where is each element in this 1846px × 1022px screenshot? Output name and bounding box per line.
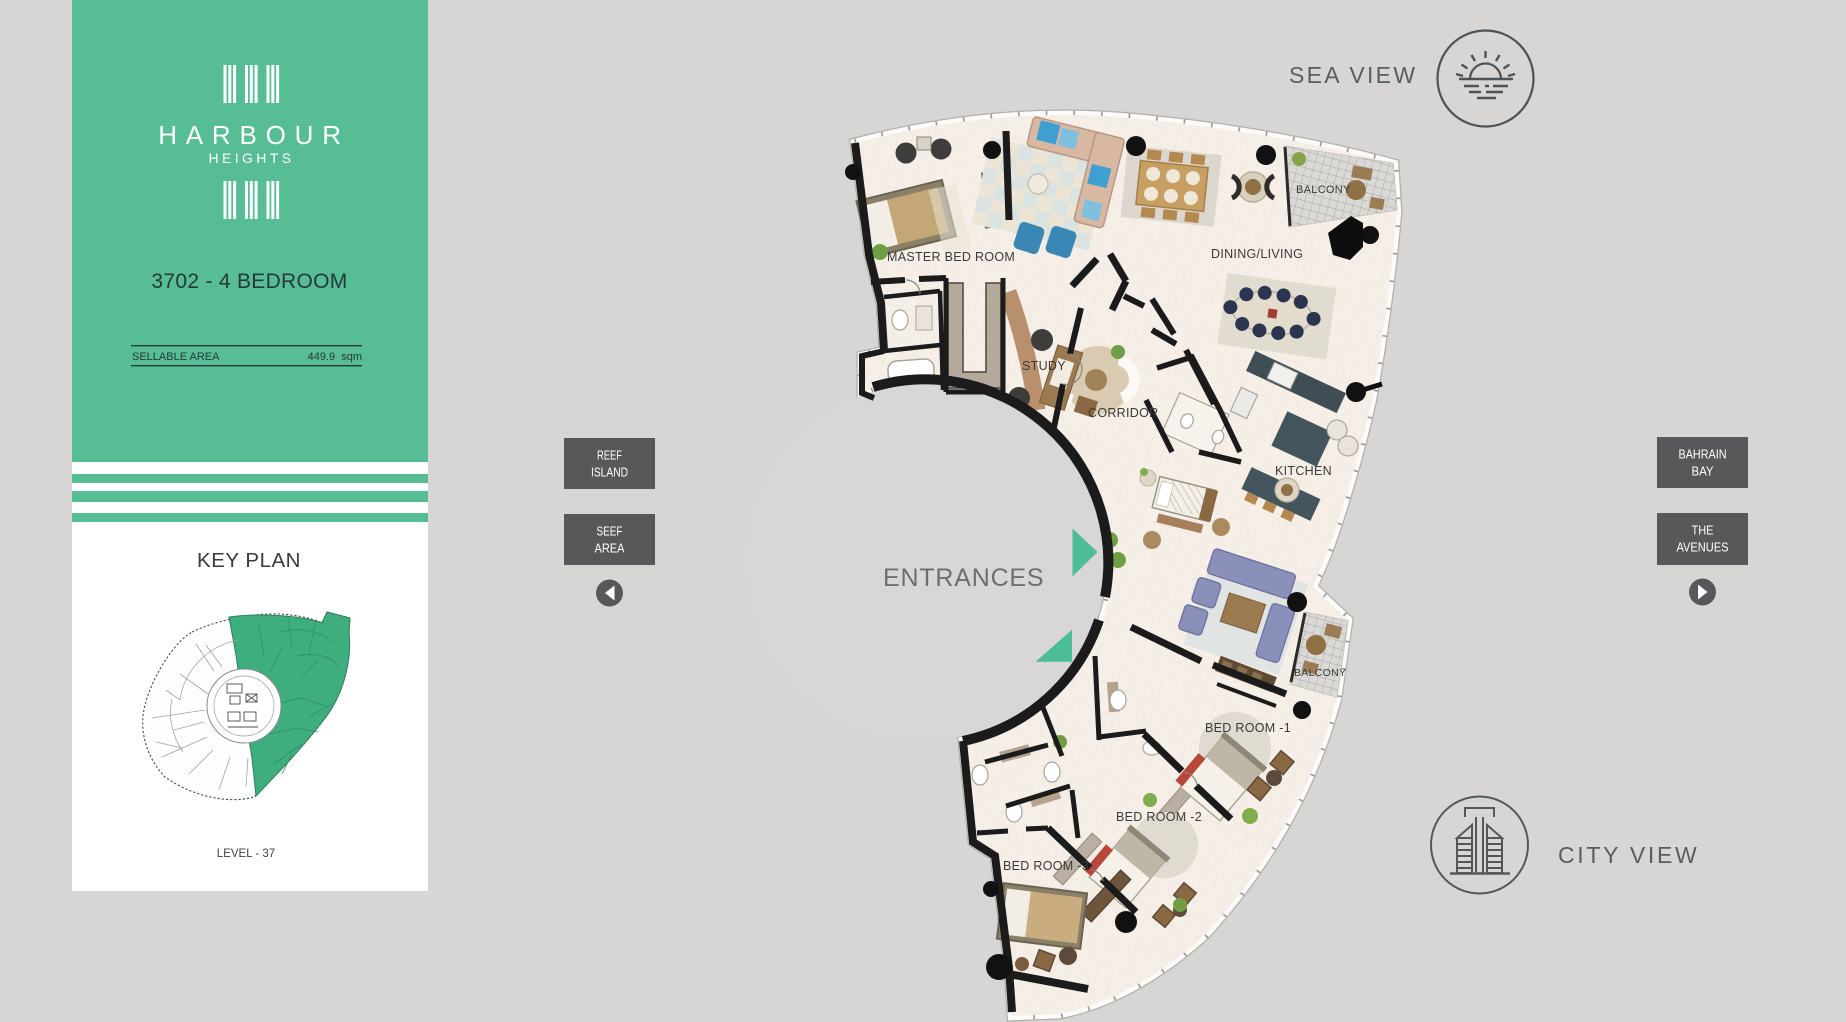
svg-text:LEVEL - 37: LEVEL - 37 [217,848,275,860]
svg-text:BED ROOM -1: BED ROOM -1 [1205,721,1291,735]
svg-text:CITY VIEW: CITY VIEW [1558,842,1699,868]
svg-text:STUDY: STUDY [1022,359,1066,373]
svg-text:CORRIDOR: CORRIDOR [1088,406,1158,420]
svg-text:ISLAND: ISLAND [591,465,628,480]
svg-text:449.9 sqm: 449.9 sqm [308,351,362,363]
svg-text:MASTER BED ROOM: MASTER BED ROOM [887,250,1015,264]
svg-text:BAHRAIN: BAHRAIN [1679,447,1727,462]
svg-text:BALCONY: BALCONY [1296,184,1351,196]
svg-text:THE: THE [1692,523,1714,538]
svg-text:AVENUES: AVENUES [1677,540,1729,555]
svg-text:SEA VIEW: SEA VIEW [1289,62,1417,88]
svg-text:BALCONY: BALCONY [1294,667,1346,679]
svg-text:BAY: BAY [1692,464,1714,479]
svg-text:AREA: AREA [595,541,625,556]
svg-text:SELLABLE AREA: SELLABLE AREA [132,351,220,363]
svg-text:BED ROOM -2: BED ROOM -2 [1116,810,1202,824]
svg-text:3702 - 4 BEDROOM: 3702 - 4 BEDROOM [151,270,347,293]
svg-text:KEY PLAN: KEY PLAN [197,549,301,572]
svg-text:HEIGHTS: HEIGHTS [208,150,294,166]
svg-text:DINING/LIVING: DINING/LIVING [1211,247,1303,261]
svg-text:BED ROOM -3: BED ROOM -3 [1003,859,1089,873]
svg-text:HARBOUR: HARBOUR [158,120,350,150]
svg-text:SEEF: SEEF [597,524,623,539]
svg-text:ENTRANCES: ENTRANCES [883,564,1044,592]
svg-text:REEF: REEF [597,448,622,463]
svg-text:KITCHEN: KITCHEN [1275,464,1332,478]
